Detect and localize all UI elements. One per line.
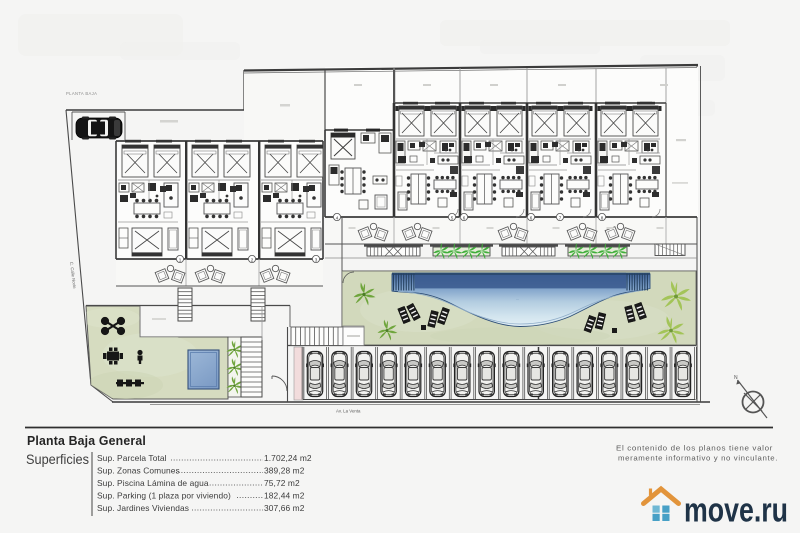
svg-text:PLANTA BAJA: PLANTA BAJA xyxy=(66,91,97,96)
svg-text:5: 5 xyxy=(451,215,454,220)
svg-text:Sup. Jardines Viviendas: Sup. Jardines Viviendas xyxy=(97,503,189,513)
svg-text:Sup. Parking (1 plaza por vivi: Sup. Parking (1 plaza por viviendo) xyxy=(97,491,231,501)
svg-text:2: 2 xyxy=(251,257,254,262)
svg-text:307,66 m2: 307,66 m2 xyxy=(264,503,305,513)
svg-text:1: 1 xyxy=(179,257,182,262)
svg-text:Sup. Zonas Comunes: Sup. Zonas Comunes xyxy=(97,466,180,476)
svg-text:1.702,24 m2: 1.702,24 m2 xyxy=(264,453,312,463)
svg-text:Planta Baja General: Planta Baja General xyxy=(27,433,146,448)
svg-text:Sup. Piscina Lámina de agua: Sup. Piscina Lámina de agua xyxy=(97,478,209,488)
svg-text:182,44 m2: 182,44 m2 xyxy=(264,491,305,501)
svg-text:Av. La Venta: Av. La Venta xyxy=(336,409,361,414)
svg-text:8: 8 xyxy=(601,215,604,220)
svg-text:389,28 m2: 389,28 m2 xyxy=(264,466,305,476)
svg-text:move.ru: move.ru xyxy=(684,492,788,530)
svg-text:75,72 m2: 75,72 m2 xyxy=(264,478,300,488)
svg-text:El contenido de los planos tie: El contenido de los planos tiene valor xyxy=(616,446,773,453)
svg-text:3: 3 xyxy=(315,257,318,262)
svg-text:N: N xyxy=(734,375,738,381)
svg-text:...: ... xyxy=(516,296,519,301)
svg-text:meramente informativo y no vin: meramente informativo y no vinculante. xyxy=(618,456,778,463)
svg-text:Sup. Parcela Total: Sup. Parcela Total xyxy=(97,453,167,463)
svg-text:Superficies: Superficies xyxy=(26,451,89,467)
svg-text:6: 6 xyxy=(463,215,466,220)
svg-text:4: 4 xyxy=(336,215,339,220)
svg-text:7: 7 xyxy=(559,215,562,220)
svg-text:6: 6 xyxy=(530,215,533,220)
